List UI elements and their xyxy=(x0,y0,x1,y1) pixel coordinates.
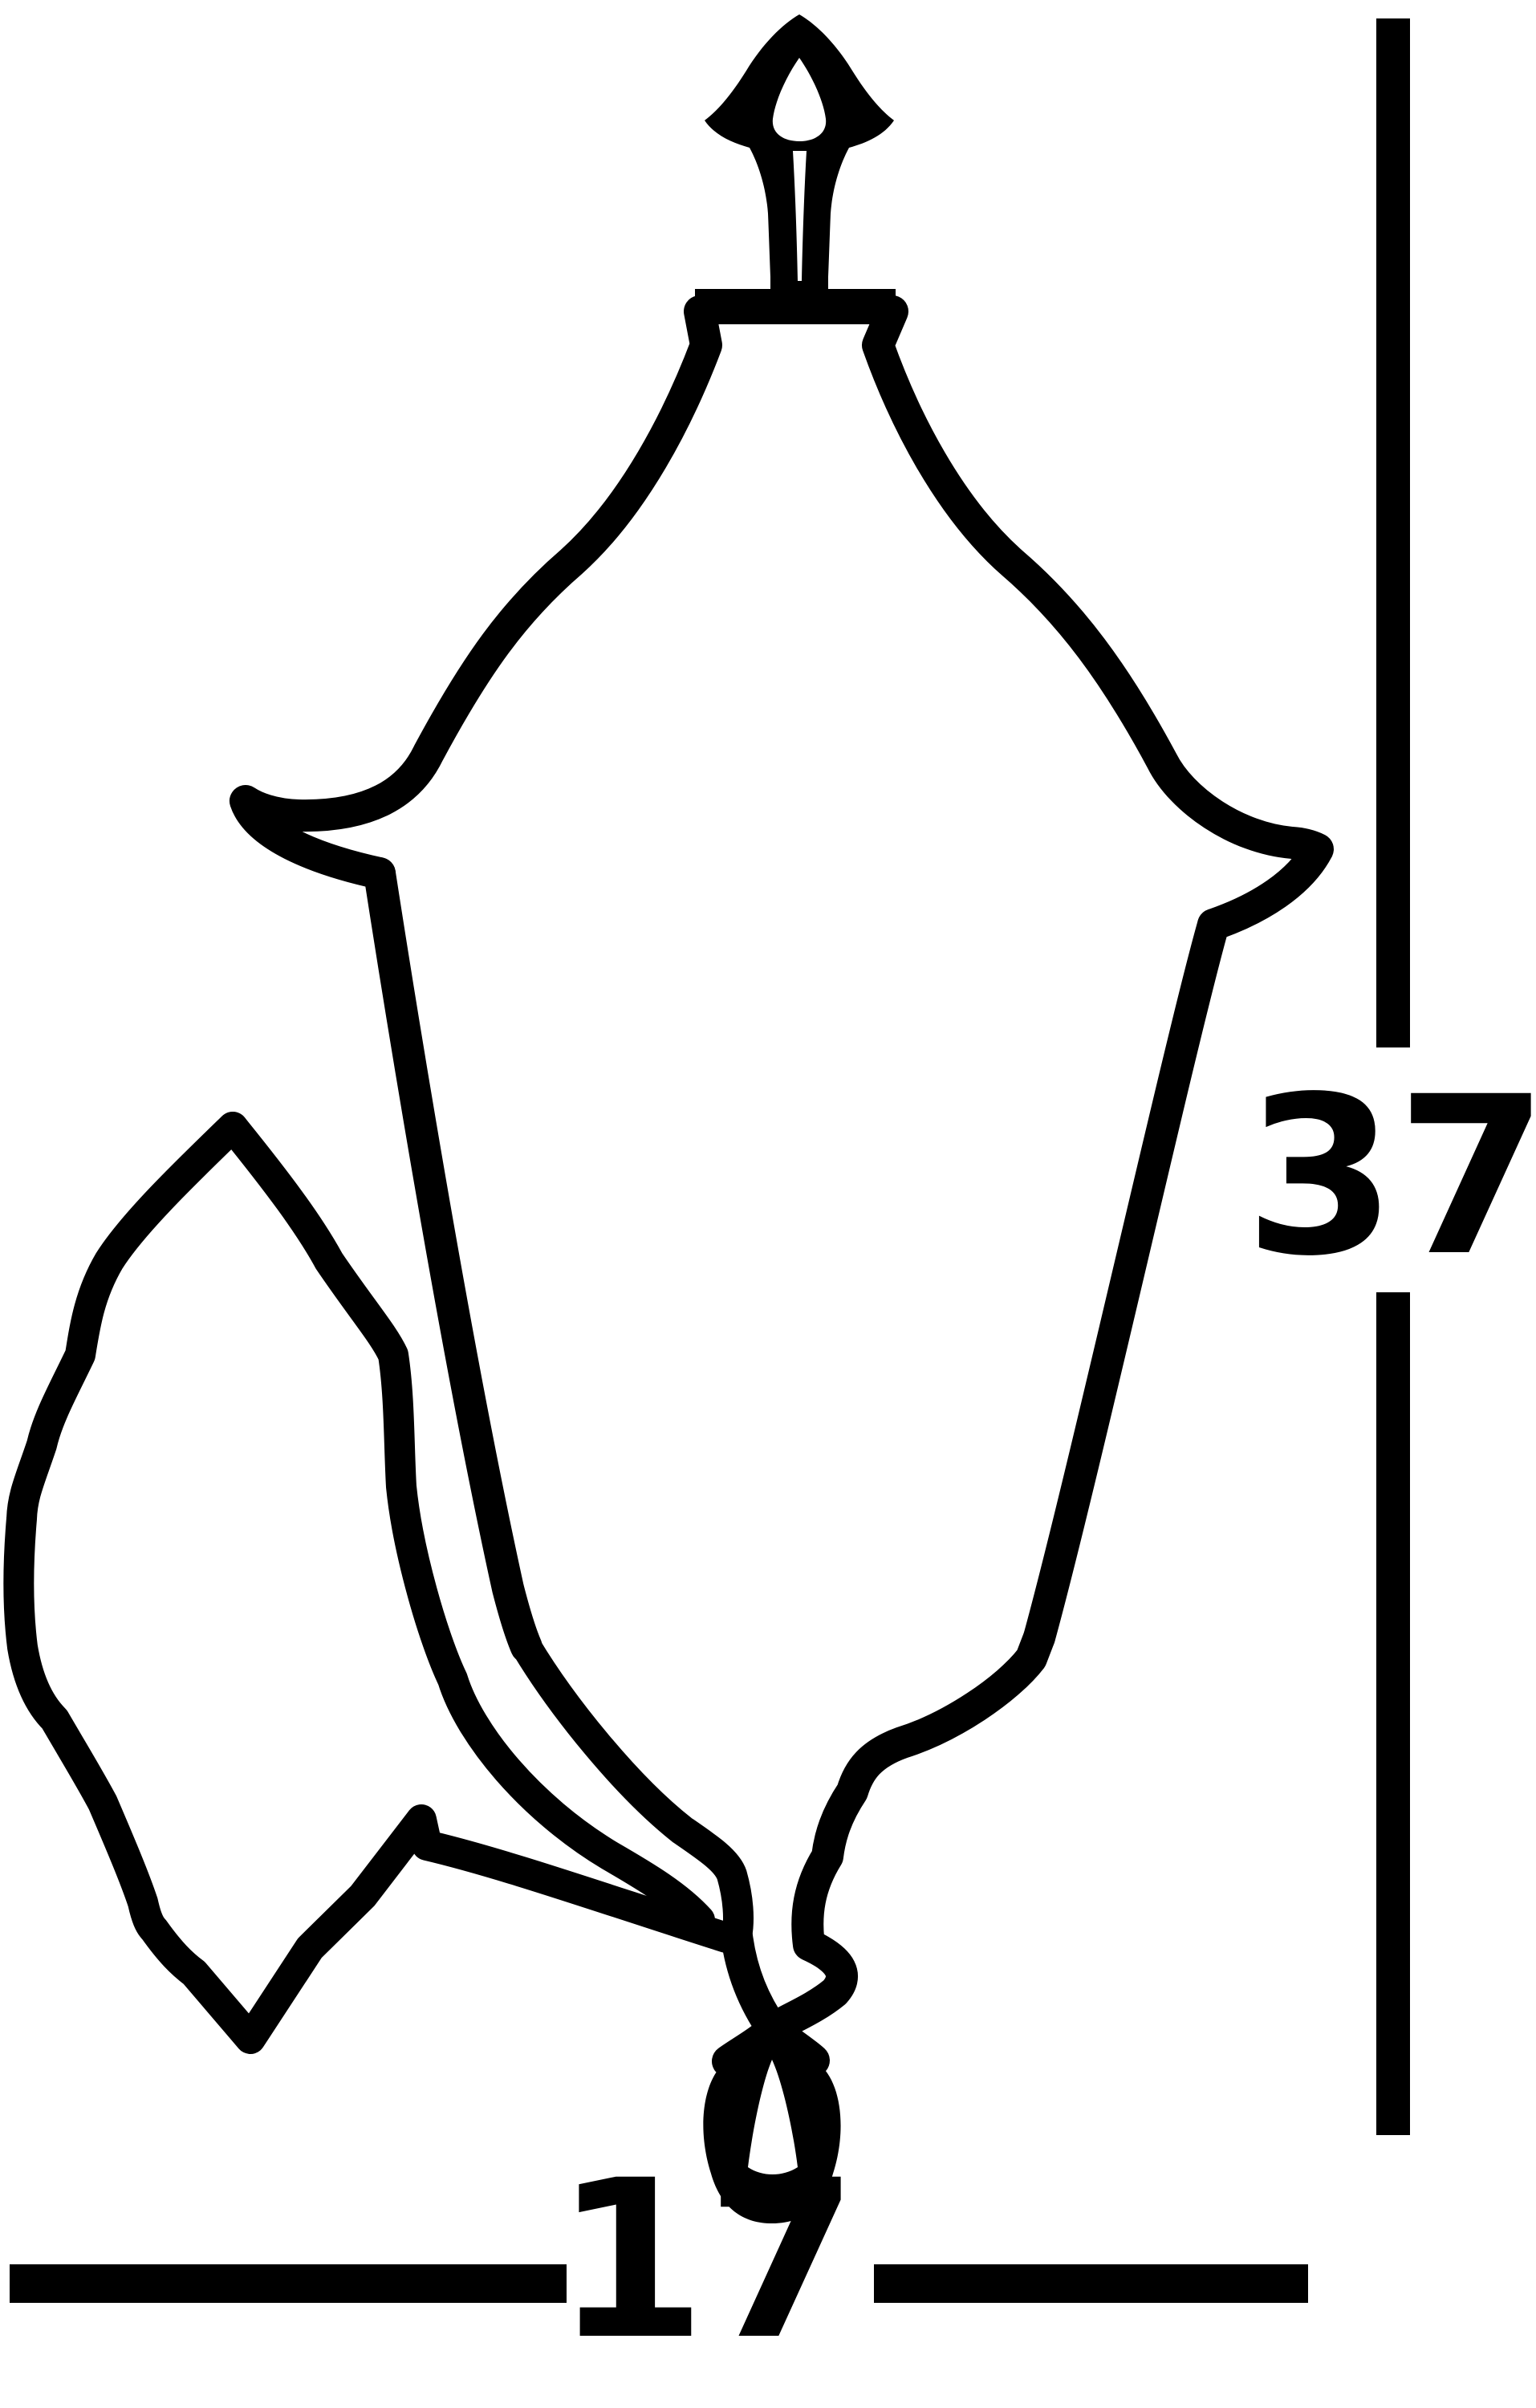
roof-left xyxy=(246,311,706,873)
width-dimension: 17 xyxy=(10,2134,1308,2388)
roof-right xyxy=(878,311,1318,925)
lantern-outline xyxy=(246,14,1318,2223)
height-dimension-label: 37 xyxy=(1245,1051,1536,1304)
lantern-line-drawing: 37 17 xyxy=(0,0,1536,2408)
height-dimension: 37 xyxy=(1245,18,1536,2135)
dimension-diagram: 37 17 xyxy=(0,0,1536,2408)
bottom-right-sweep xyxy=(728,1637,1039,2061)
body-right-edge xyxy=(1039,925,1213,1637)
wall-bracket xyxy=(18,1127,738,2039)
finial-icon xyxy=(705,14,894,291)
width-dimension-label: 17 xyxy=(555,2134,859,2388)
backplate-left-edge xyxy=(18,1127,726,2039)
